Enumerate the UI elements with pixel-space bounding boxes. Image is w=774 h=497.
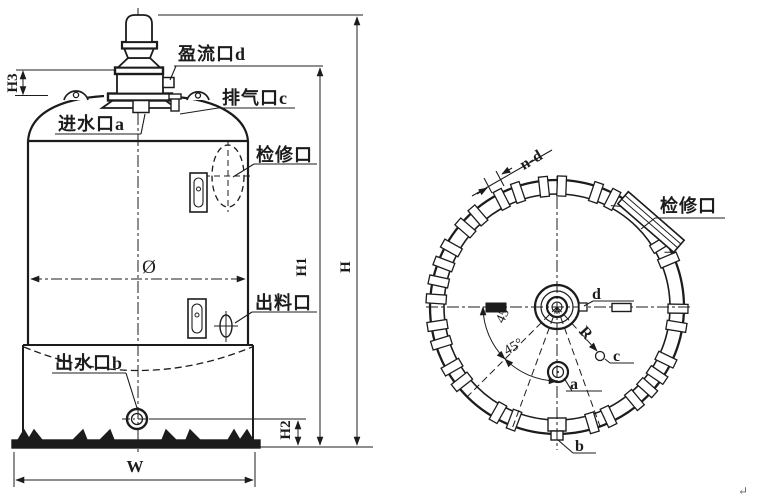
port-c-circle bbox=[596, 352, 605, 361]
dim-h: H bbox=[338, 261, 354, 273]
side-fitting-right bbox=[612, 304, 631, 312]
vent-cap-assembly bbox=[102, 15, 176, 113]
overflow-port-stub bbox=[163, 78, 174, 88]
rim-notch bbox=[426, 294, 447, 304]
rim-notch bbox=[441, 358, 463, 376]
rim-notch bbox=[468, 205, 488, 226]
discharge-port-symbol bbox=[214, 311, 238, 342]
manhole-label-front: 检修口 bbox=[256, 144, 313, 165]
inlet-port-stub bbox=[133, 101, 149, 113]
rim-notch bbox=[493, 188, 510, 210]
manhole-label-top: 检修口 bbox=[660, 195, 717, 216]
rim-notch bbox=[451, 372, 472, 391]
rim-notch bbox=[600, 406, 617, 428]
port-a-label: a bbox=[570, 376, 578, 393]
drawing-canvas: 盈流口d 排气口c 进水口a 检修口 出料口 出水口b H H1 H2 H3 W… bbox=[0, 0, 774, 497]
sight-glass-upper bbox=[190, 173, 207, 212]
front-view: 盈流口d 排气口c 进水口a 检修口 出料口 出水口b H H1 H2 H3 W… bbox=[5, 8, 373, 487]
angle-label-bottom: 45° bbox=[502, 336, 526, 359]
rim-notch bbox=[455, 218, 476, 238]
dim-h1: H1 bbox=[294, 257, 310, 276]
diameter-symbol: Ø bbox=[142, 257, 156, 278]
sight-glass-lower bbox=[188, 299, 206, 338]
paragraph-return-mark: ↵ bbox=[738, 484, 748, 497]
rim-notch bbox=[604, 188, 621, 210]
rim-notch bbox=[668, 304, 688, 313]
port-d-label: d bbox=[592, 286, 601, 303]
rim-notch bbox=[557, 176, 567, 196]
port-c-label: c bbox=[613, 348, 620, 365]
inlet-port-label: 进水口a bbox=[58, 113, 125, 134]
vent-port-label: 排气口c bbox=[222, 87, 288, 108]
rim-notch bbox=[646, 366, 668, 385]
outlet-port-label: 出水口b bbox=[55, 352, 123, 373]
manhole-hidden-view bbox=[204, 140, 252, 212]
port-b-label: b bbox=[575, 438, 584, 455]
rim-notch bbox=[655, 351, 677, 368]
vent-port-fitting bbox=[171, 98, 179, 111]
dim-w: W bbox=[127, 457, 144, 476]
front-dimensions bbox=[14, 15, 373, 487]
outlet-port-b bbox=[122, 409, 152, 429]
discharge-port-label: 出料口 bbox=[255, 292, 312, 313]
dim-h3: H3 bbox=[5, 73, 21, 92]
dim-h2: H2 bbox=[278, 420, 294, 439]
rim-notch bbox=[625, 389, 645, 410]
rim-notch bbox=[489, 402, 507, 424]
base-plate bbox=[12, 430, 260, 448]
slot-dim-label: n-d bbox=[517, 147, 546, 174]
rim-notch bbox=[637, 378, 658, 398]
overflow-port-label: 盈流口d bbox=[177, 43, 246, 64]
rim-notch bbox=[538, 176, 549, 197]
rim-notch bbox=[440, 239, 462, 257]
top-view: 检修口 n-d 45° 45° R d c a b bbox=[426, 147, 725, 455]
radius-label: R bbox=[575, 323, 596, 343]
tank-engineering-drawing: 盈流口d 排气口c 进水口a 检修口 出料口 出水口b H H1 H2 H3 W… bbox=[0, 0, 774, 497]
